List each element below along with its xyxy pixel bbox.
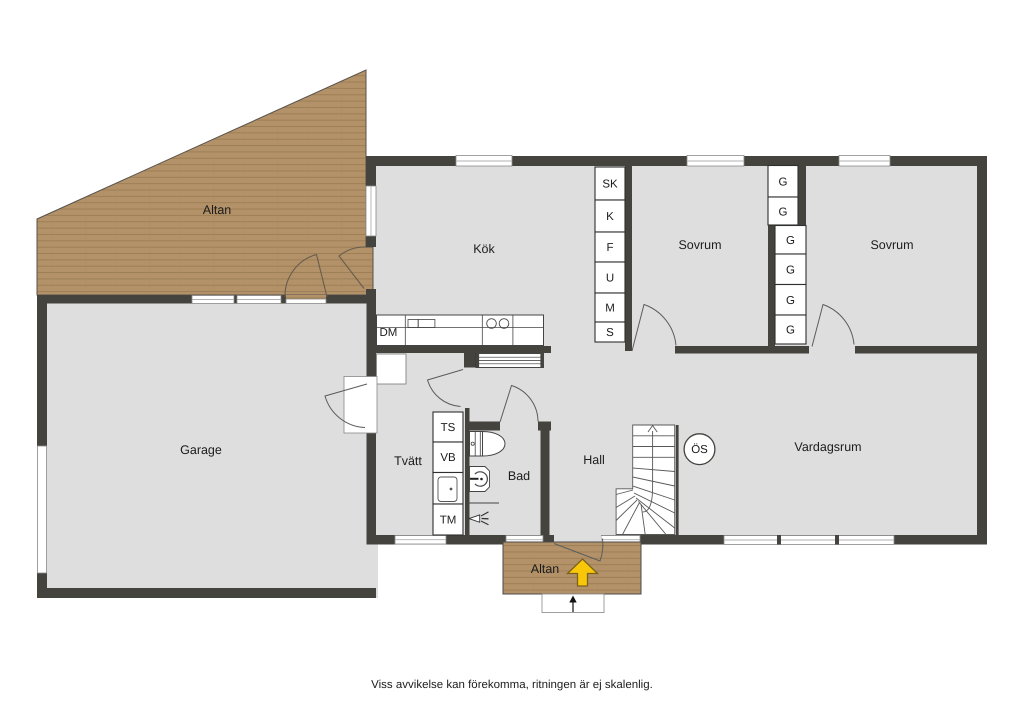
svg-text:Altan: Altan	[203, 203, 232, 217]
svg-text:G: G	[779, 207, 788, 219]
svg-text:Sovrum: Sovrum	[678, 238, 721, 252]
svg-text:Hall: Hall	[583, 453, 605, 467]
svg-text:Bad: Bad	[508, 469, 530, 483]
svg-text:S: S	[606, 327, 614, 339]
svg-text:G: G	[786, 295, 795, 307]
svg-text:Sovrum: Sovrum	[870, 238, 913, 252]
svg-text:Tvätt: Tvätt	[394, 454, 422, 468]
svg-text:Garage: Garage	[180, 443, 222, 457]
svg-text:M: M	[605, 303, 615, 315]
svg-text:DM: DM	[380, 327, 398, 339]
svg-text:SK: SK	[602, 179, 618, 191]
svg-text:Altan: Altan	[531, 562, 560, 576]
svg-text:G: G	[786, 265, 795, 277]
svg-text:G: G	[786, 325, 795, 337]
svg-text:TS: TS	[441, 422, 456, 434]
svg-text:U: U	[606, 273, 614, 285]
svg-text:G: G	[786, 235, 795, 247]
svg-text:ÖS: ÖS	[691, 443, 708, 456]
svg-text:G: G	[779, 177, 788, 189]
svg-text:K: K	[606, 211, 614, 223]
svg-text:TM: TM	[440, 515, 457, 527]
svg-text:Vardagsrum: Vardagsrum	[794, 440, 861, 454]
svg-text:F: F	[606, 242, 613, 254]
svg-text:Viss avvikelse kan förekomma,: Viss avvikelse kan förekomma, ritningen …	[371, 679, 653, 691]
svg-text:VB: VB	[440, 452, 456, 464]
svg-text:Kök: Kök	[473, 242, 495, 256]
